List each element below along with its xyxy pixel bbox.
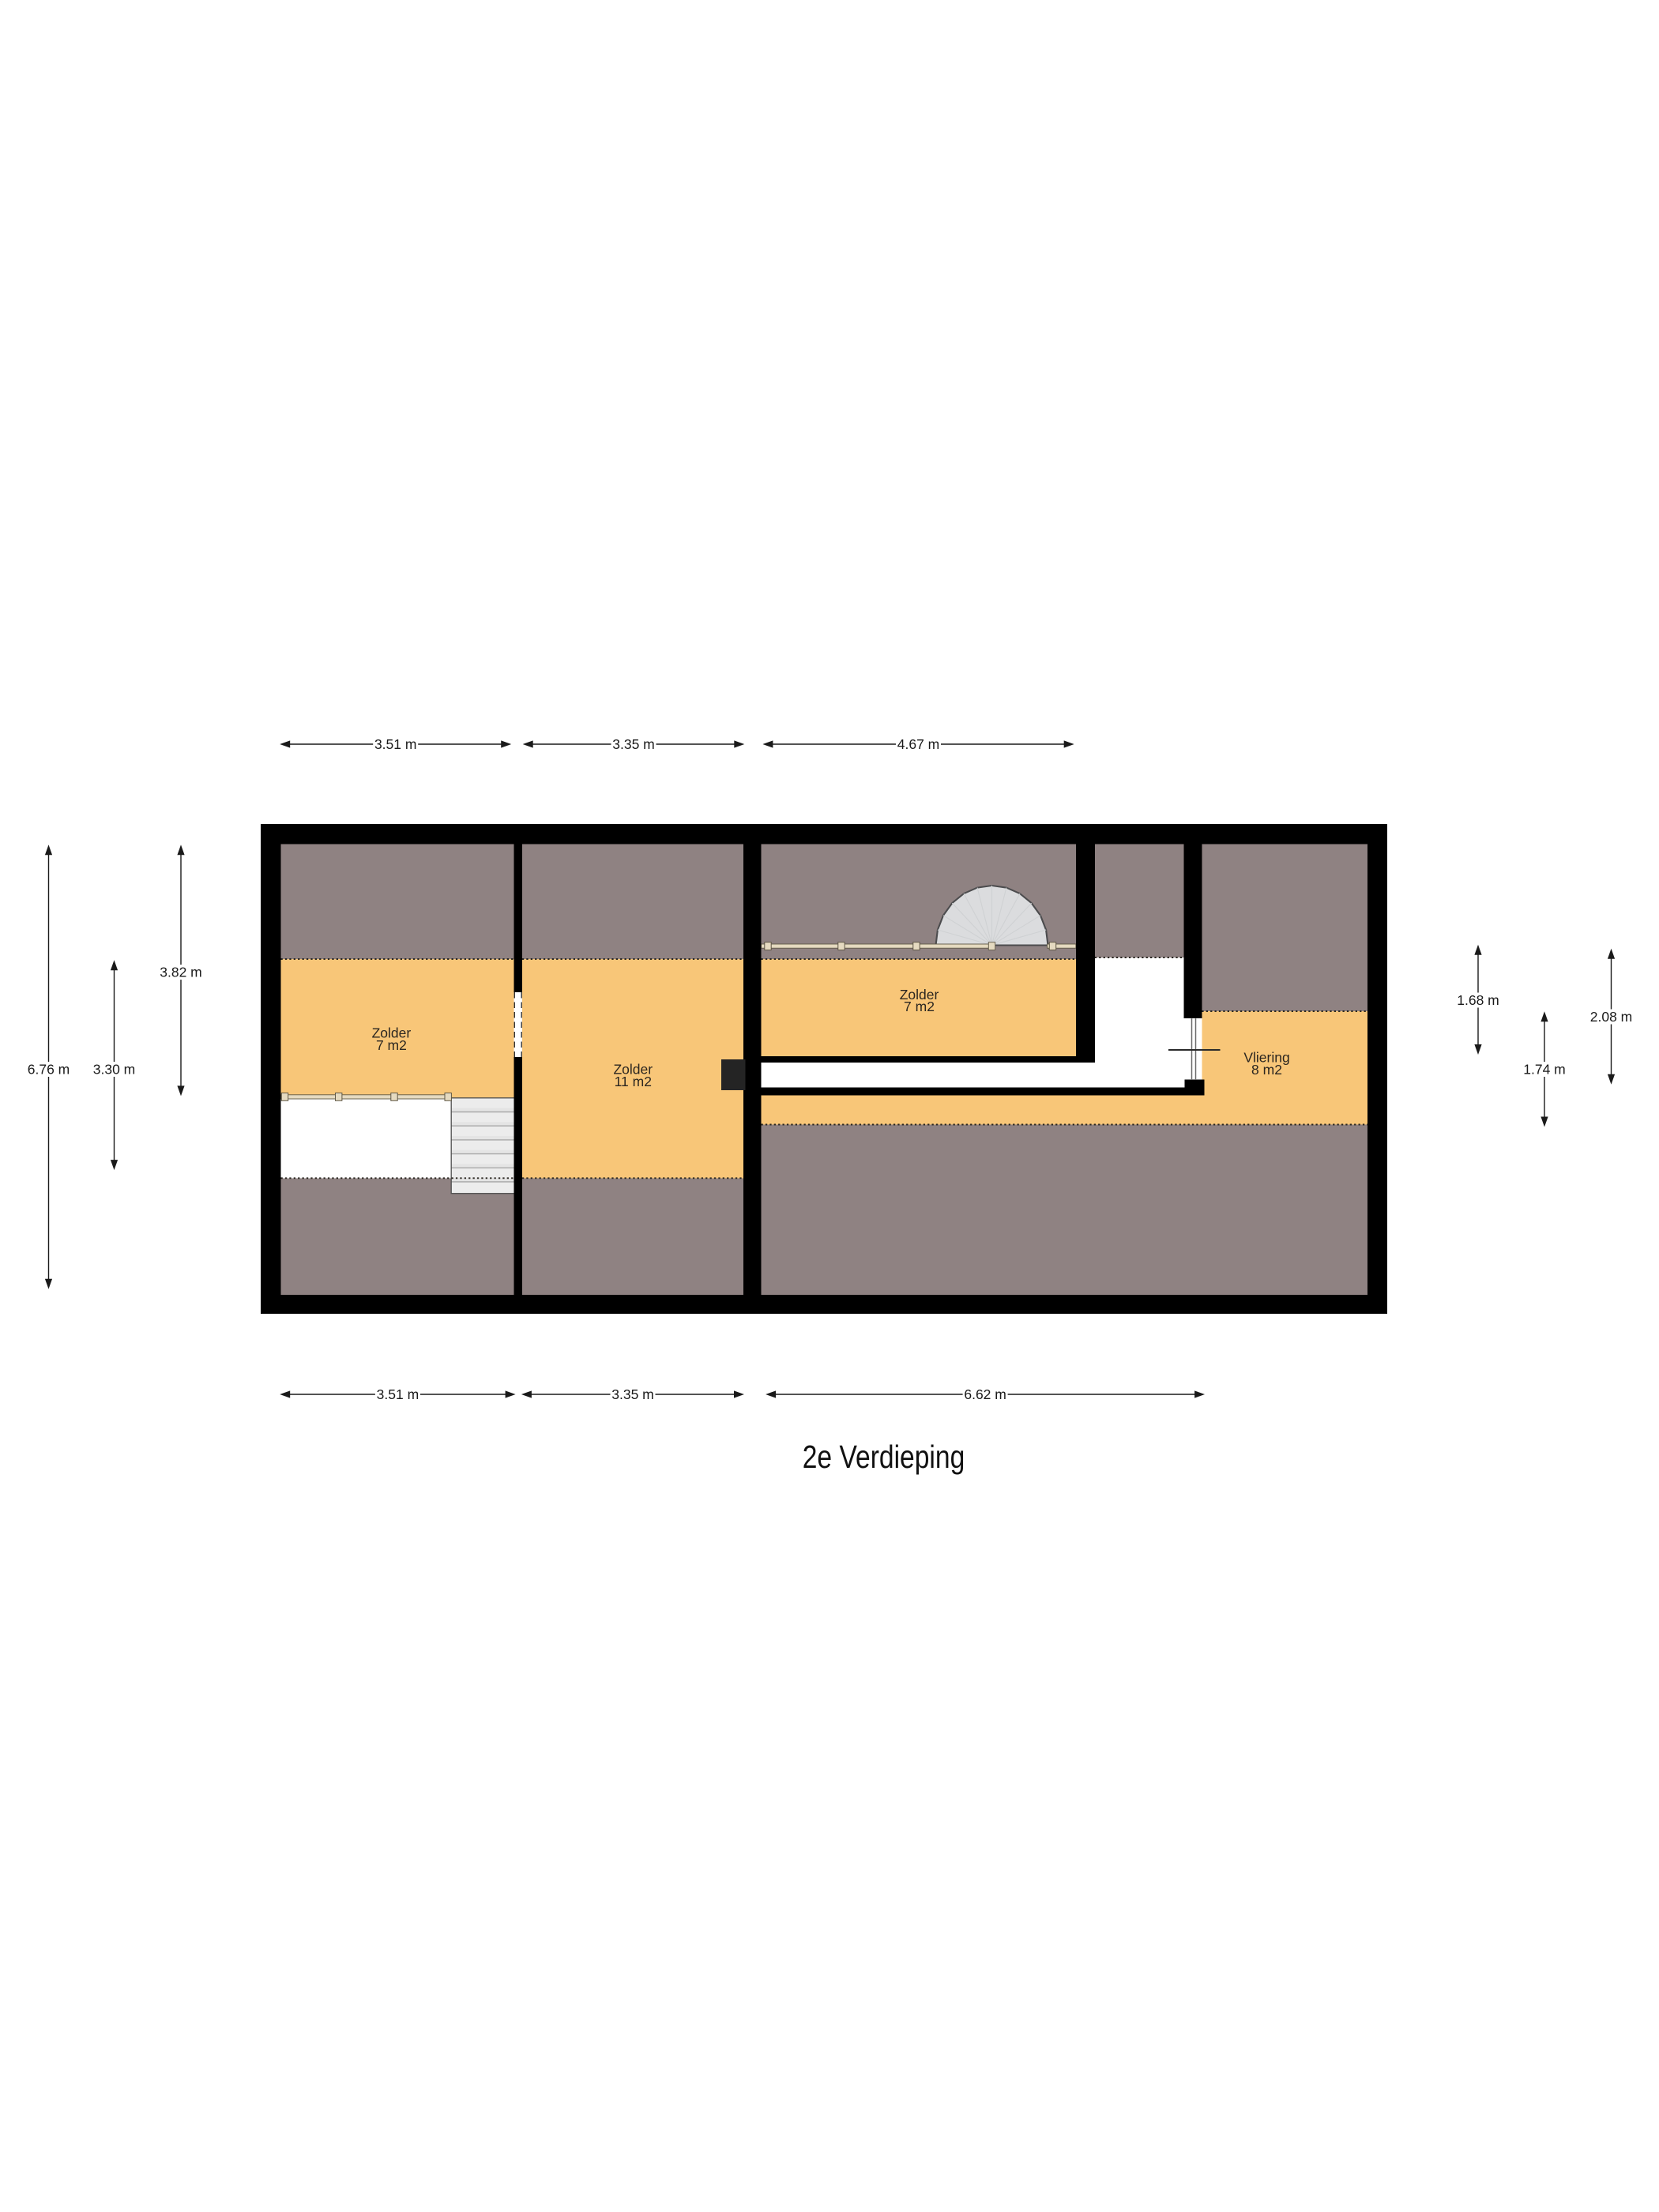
svg-text:3.51 m: 3.51 m: [377, 1386, 419, 1402]
svg-text:11 m2: 11 m2: [615, 1074, 652, 1089]
svg-text:8 m2: 8 m2: [1251, 1062, 1282, 1078]
svg-text:3.82 m: 3.82 m: [160, 965, 202, 980]
svg-text:3.35 m: 3.35 m: [612, 736, 655, 752]
svg-text:2e Verdieping: 2e Verdieping: [803, 1439, 965, 1475]
svg-text:1.74 m: 1.74 m: [1523, 1062, 1566, 1078]
svg-text:3.51 m: 3.51 m: [374, 736, 417, 752]
svg-text:7 m2: 7 m2: [904, 999, 935, 1014]
svg-text:4.67 m: 4.67 m: [897, 736, 940, 752]
svg-text:1.68 m: 1.68 m: [1457, 992, 1499, 1008]
svg-text:3.35 m: 3.35 m: [611, 1386, 654, 1402]
svg-text:3.30 m: 3.30 m: [93, 1062, 136, 1078]
svg-text:7 m2: 7 m2: [376, 1037, 407, 1053]
svg-text:2.08 m: 2.08 m: [1590, 1009, 1633, 1025]
svg-text:6.62 m: 6.62 m: [964, 1386, 1006, 1402]
svg-text:6.76 m: 6.76 m: [28, 1062, 70, 1078]
